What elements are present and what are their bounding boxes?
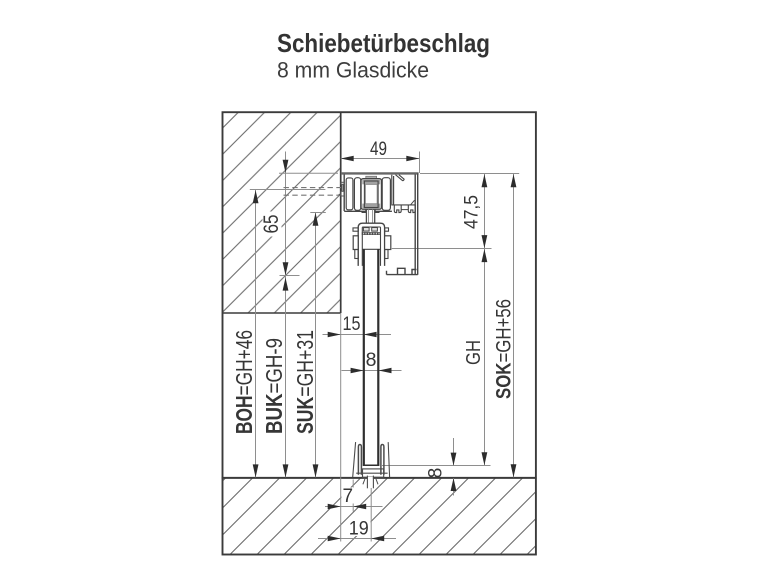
svg-text:49: 49	[370, 138, 387, 160]
svg-text:8: 8	[366, 349, 377, 371]
svg-text:Schiebetürbeschlag: Schiebetürbeschlag	[277, 28, 490, 58]
svg-text:7: 7	[343, 486, 354, 507]
svg-text:BOH=GH+46: BOH=GH+46	[231, 330, 257, 434]
svg-text:SUK=GH+31: SUK=GH+31	[292, 330, 318, 434]
svg-text:8: 8	[426, 468, 447, 479]
svg-text:65: 65	[260, 215, 283, 234]
svg-text:47,5: 47,5	[462, 195, 483, 229]
svg-text:15: 15	[343, 313, 361, 335]
svg-text:SOK=GH+56: SOK=GH+56	[493, 299, 516, 399]
svg-text:19: 19	[349, 518, 369, 539]
svg-text:8 mm Glasdicke: 8 mm Glasdicke	[277, 58, 429, 83]
svg-text:GH: GH	[463, 340, 485, 365]
svg-text:BUK=GH-9: BUK=GH-9	[261, 338, 287, 434]
